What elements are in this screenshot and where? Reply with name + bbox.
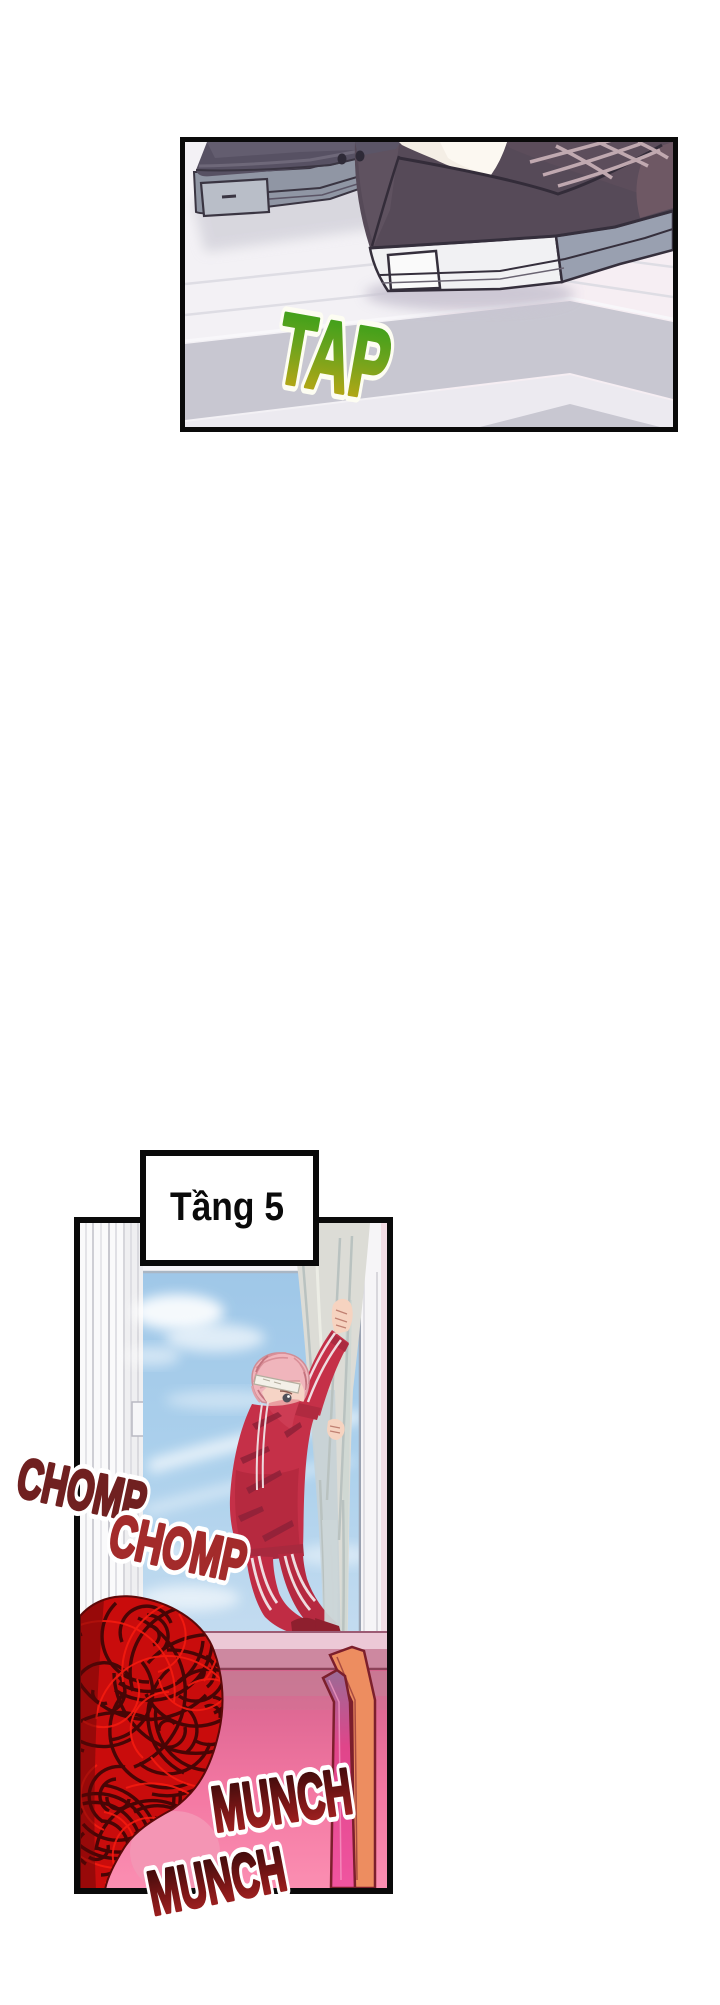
svg-text:Tầng 5: Tầng 5 [170,1185,284,1229]
svg-text:TAP: TAP [269,292,399,422]
